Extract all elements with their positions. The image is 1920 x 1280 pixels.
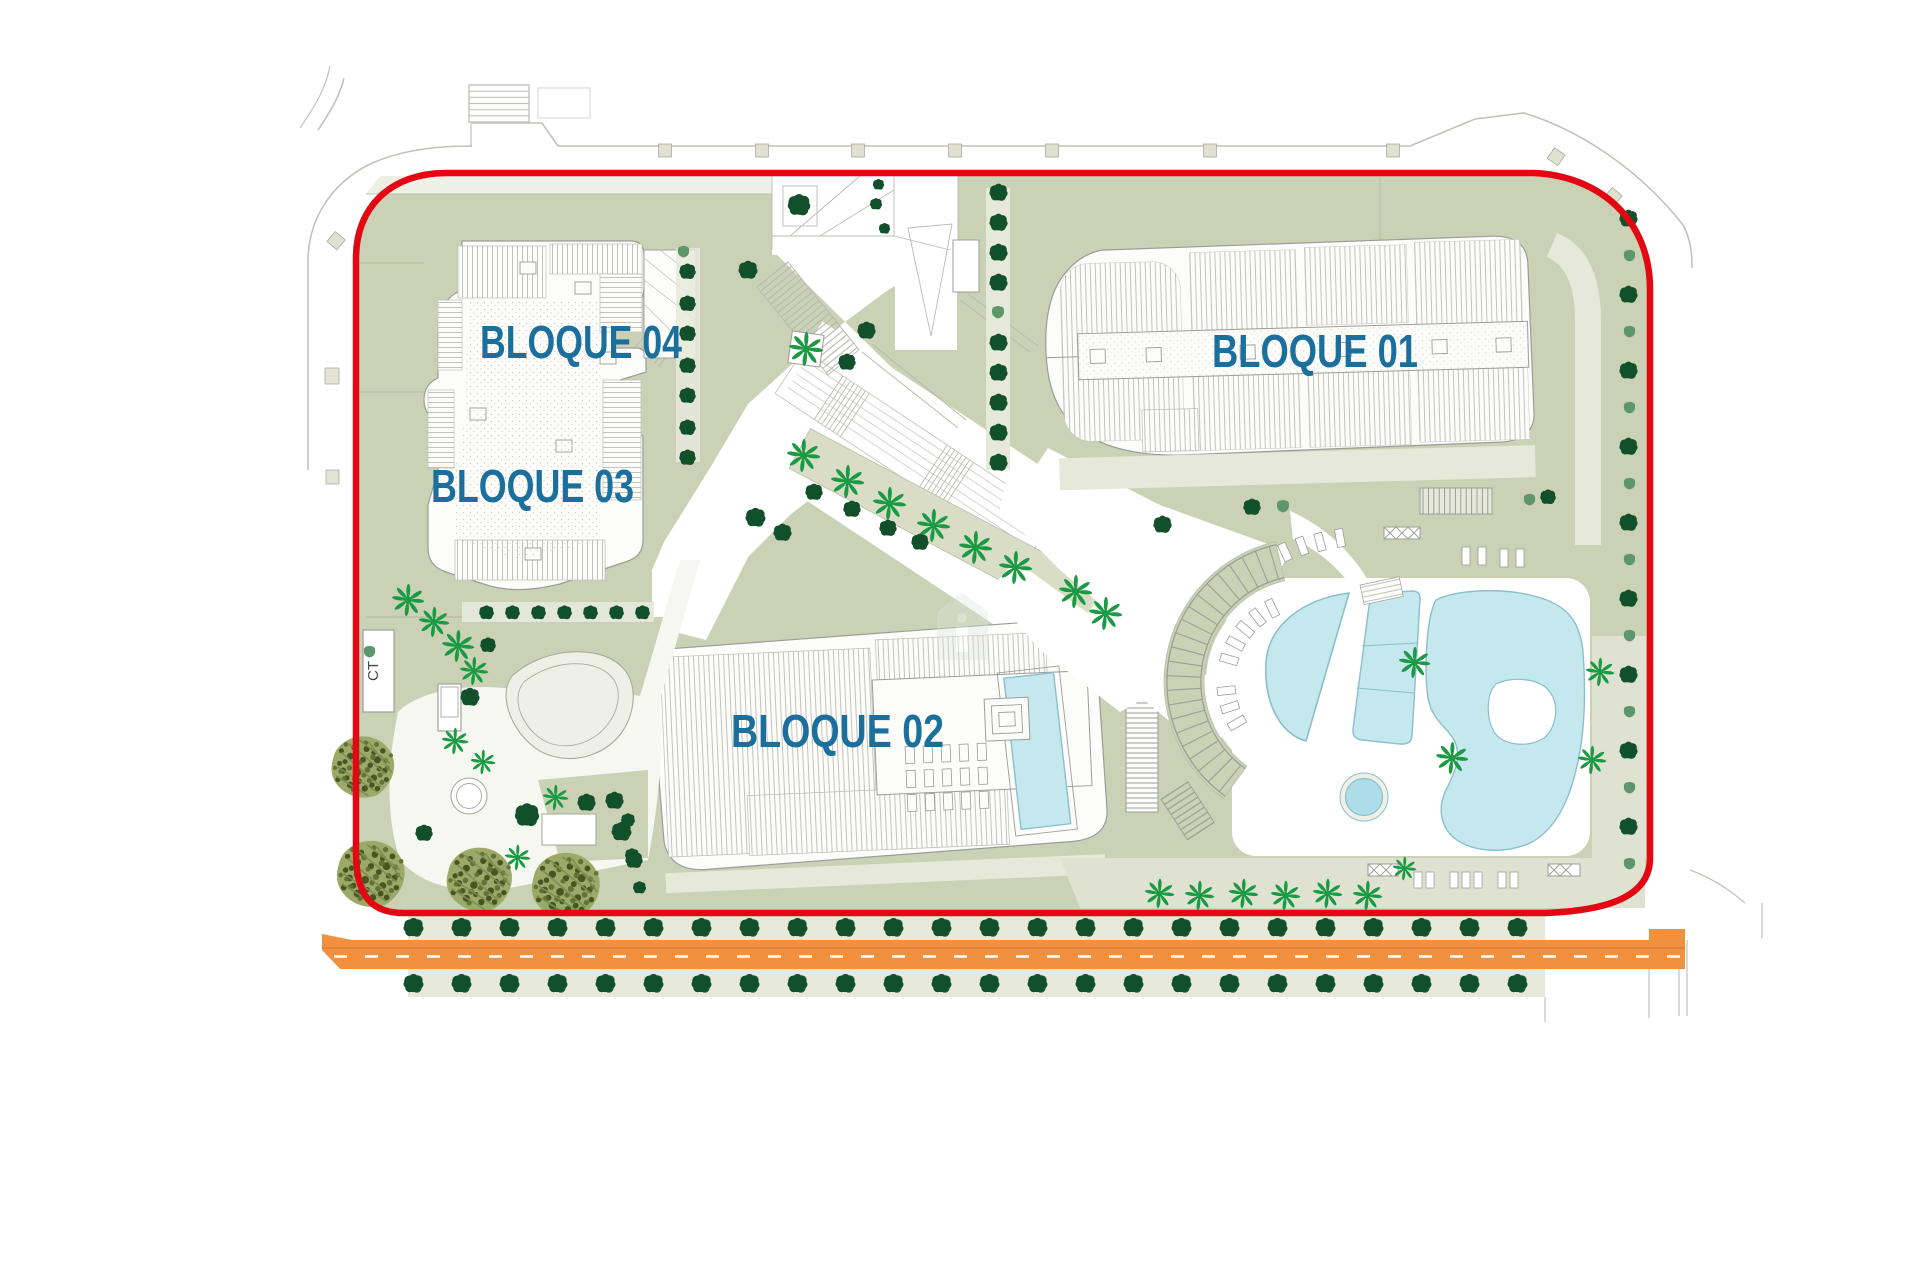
svg-text:BLOQUE 03: BLOQUE 03 <box>431 460 634 512</box>
svg-text:BLOQUE 01: BLOQUE 01 <box>1212 325 1418 377</box>
svg-text:BLOQUE 04: BLOQUE 04 <box>480 316 682 368</box>
svg-text:CT: CT <box>365 661 382 681</box>
svg-text:BLOQUE 02: BLOQUE 02 <box>731 705 944 757</box>
